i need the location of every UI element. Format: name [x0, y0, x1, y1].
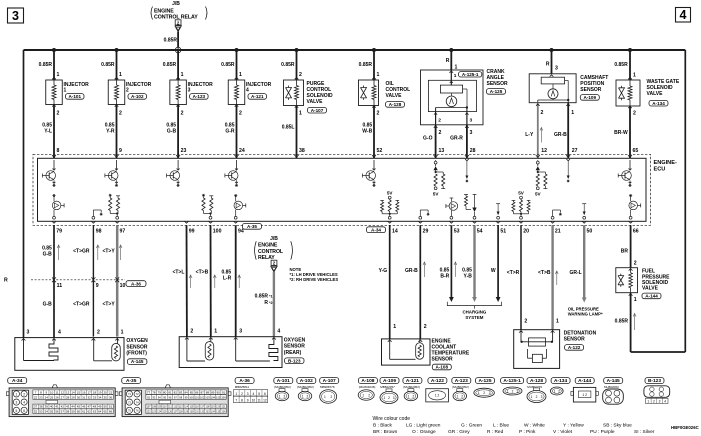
- svg-text:R: R: [264, 300, 268, 306]
- svg-text:1: 1: [57, 72, 60, 78]
- svg-text:121: 121: [222, 406, 227, 409]
- svg-text:G : Green: G : Green: [461, 423, 482, 429]
- svg-text:125: 125: [163, 411, 168, 414]
- svg-text:Y-L: Y-L: [44, 129, 52, 135]
- svg-text:3: 3: [188, 88, 191, 94]
- svg-text:135: 135: [216, 411, 221, 414]
- svg-text:104: 104: [211, 395, 216, 399]
- svg-text:52: 52: [34, 410, 38, 414]
- svg-text:G-B: G-B: [43, 252, 53, 258]
- svg-text:SENSOR: SENSOR: [564, 337, 586, 343]
- svg-text:GR-R: GR-R: [450, 135, 463, 141]
- svg-text:A-125-1: A-125-1: [503, 378, 521, 384]
- svg-text:5V: 5V: [518, 191, 525, 196]
- svg-text:110: 110: [163, 406, 167, 409]
- svg-text:77: 77: [147, 391, 151, 395]
- svg-text:23: 23: [39, 395, 43, 399]
- svg-text:0.85R: 0.85R: [221, 62, 235, 68]
- svg-text:130: 130: [189, 411, 194, 414]
- svg-text:128: 128: [179, 411, 184, 414]
- svg-text:A-108: A-108: [361, 378, 374, 384]
- svg-text:107: 107: [147, 406, 152, 409]
- svg-text:A-35: A-35: [126, 378, 137, 384]
- svg-text:2: 2: [299, 72, 302, 78]
- svg-text:A-107: A-107: [323, 378, 336, 384]
- svg-text:15: 15: [77, 391, 81, 395]
- svg-text:132: 132: [200, 411, 205, 414]
- svg-text:3: 3: [470, 130, 473, 136]
- svg-text:0.85: 0.85: [42, 123, 52, 129]
- svg-text:13: 13: [66, 391, 70, 395]
- svg-text:116: 116: [195, 406, 199, 409]
- svg-text:51: 51: [109, 405, 113, 409]
- svg-text:6: 6: [264, 392, 266, 396]
- svg-text:94: 94: [238, 228, 244, 234]
- svg-text:VALVE: VALVE: [386, 93, 403, 99]
- svg-text:1: 1: [279, 394, 281, 398]
- svg-text:14: 14: [71, 391, 75, 395]
- svg-text:3: 3: [541, 395, 543, 399]
- svg-text:OXYGEN: OXYGEN: [126, 338, 148, 344]
- svg-text:49: 49: [98, 405, 102, 409]
- svg-text:28: 28: [470, 148, 476, 154]
- svg-text:11: 11: [55, 391, 58, 395]
- svg-text:2: 2: [119, 111, 122, 117]
- svg-text:2: 2: [524, 319, 527, 325]
- svg-text:A-145: A-145: [131, 359, 144, 364]
- svg-text:4: 4: [664, 400, 666, 404]
- svg-text:R: R: [4, 277, 8, 283]
- svg-text:1: 1: [239, 72, 242, 78]
- svg-text:8: 8: [241, 399, 243, 403]
- svg-text:A-34: A-34: [12, 378, 23, 384]
- svg-text:28: 28: [66, 395, 70, 399]
- svg-text:A-121: A-121: [251, 94, 264, 99]
- svg-text:2: 2: [241, 392, 243, 396]
- svg-text:HBF0GE026C: HBF0GE026C: [671, 425, 699, 430]
- svg-text:0.85R: 0.85R: [164, 38, 178, 44]
- svg-text:A-109: A-109: [584, 95, 597, 100]
- svg-text:L-R: L-R: [223, 276, 232, 282]
- svg-text:39: 39: [45, 405, 49, 409]
- svg-text:122: 122: [147, 411, 152, 414]
- svg-text:PU : Purple: PU : Purple: [590, 429, 615, 435]
- svg-text:9: 9: [119, 148, 122, 154]
- svg-text:65: 65: [103, 410, 107, 414]
- svg-text:12: 12: [61, 391, 65, 395]
- svg-text:A-101: A-101: [68, 94, 81, 99]
- svg-text:CONTROL: CONTROL: [258, 249, 284, 255]
- svg-text:DETONATION: DETONATION: [564, 330, 597, 336]
- svg-text:2: 2: [283, 394, 285, 398]
- svg-text:4: 4: [680, 8, 687, 22]
- svg-text:A-36: A-36: [131, 281, 141, 286]
- svg-text:85: 85: [190, 391, 194, 395]
- svg-text:1: 1: [457, 394, 459, 398]
- svg-text:2: 2: [368, 393, 370, 397]
- svg-text:100: 100: [189, 395, 194, 399]
- svg-text:52: 52: [377, 148, 383, 154]
- svg-text:5V: 5V: [433, 191, 440, 196]
- svg-text:81: 81: [168, 391, 172, 395]
- svg-text:MB825811: MB825811: [235, 385, 250, 389]
- svg-text:2: 2: [190, 329, 193, 335]
- svg-text:GR-B: GR-B: [405, 268, 418, 274]
- svg-text:VALVE: VALVE: [307, 99, 324, 105]
- svg-text:1: 1: [377, 72, 380, 78]
- svg-text:A-102: A-102: [131, 94, 144, 99]
- svg-text:2: 2: [126, 88, 129, 94]
- svg-text:8: 8: [57, 148, 60, 154]
- svg-text:31: 31: [82, 395, 86, 399]
- svg-text:A-134: A-134: [652, 101, 665, 106]
- svg-text:63: 63: [93, 410, 97, 414]
- svg-text:21: 21: [555, 228, 561, 234]
- svg-text:21: 21: [109, 391, 113, 395]
- svg-text:1: 1: [16, 392, 18, 396]
- svg-text:0.85: 0.85: [221, 270, 231, 276]
- svg-text:2: 2: [439, 130, 442, 136]
- svg-text:1: 1: [64, 88, 67, 94]
- svg-text:12: 12: [263, 399, 267, 403]
- svg-text:5V: 5V: [387, 191, 394, 196]
- svg-text:A-125: A-125: [478, 378, 491, 384]
- svg-text:GR : Grey: GR : Grey: [448, 429, 470, 435]
- svg-text:55: 55: [50, 410, 54, 414]
- svg-text:R: R: [446, 58, 450, 64]
- svg-text:40: 40: [50, 405, 54, 409]
- svg-text:27: 27: [572, 148, 578, 154]
- svg-text:17: 17: [87, 391, 91, 395]
- svg-text:V : Violet: V : Violet: [553, 429, 573, 435]
- svg-text:97: 97: [120, 228, 126, 234]
- svg-text:3: 3: [555, 66, 558, 72]
- svg-text:14: 14: [392, 228, 398, 234]
- svg-text:GR-B: GR-B: [554, 132, 567, 138]
- svg-text:2: 2: [512, 389, 514, 393]
- svg-text:10: 10: [50, 391, 54, 395]
- svg-text:2: 2: [412, 394, 414, 398]
- svg-text:18: 18: [93, 391, 97, 395]
- svg-text:118: 118: [206, 406, 210, 409]
- svg-text:VALVE: VALVE: [647, 91, 664, 97]
- svg-text:3: 3: [393, 396, 395, 400]
- svg-text:86: 86: [195, 391, 199, 395]
- svg-text:2: 2: [377, 111, 380, 117]
- svg-text:25: 25: [50, 395, 54, 399]
- svg-text:22: 22: [34, 395, 38, 399]
- svg-text:1: 1: [119, 72, 122, 78]
- svg-text:66: 66: [109, 410, 113, 414]
- svg-text:106: 106: [221, 395, 226, 399]
- svg-text:A-102: A-102: [300, 378, 313, 384]
- svg-text:0.85: 0.85: [166, 123, 176, 129]
- svg-text:(REAR): (REAR): [284, 350, 302, 356]
- svg-text:20: 20: [103, 391, 107, 395]
- svg-text:R : Red: R : Red: [487, 429, 504, 435]
- svg-text:129: 129: [184, 411, 189, 414]
- svg-text:A-122: A-122: [568, 345, 581, 350]
- svg-text:2: 2: [306, 394, 308, 398]
- svg-text:61: 61: [82, 410, 86, 414]
- svg-text:A-145: A-145: [607, 378, 620, 384]
- svg-text:1: 1: [633, 73, 636, 79]
- svg-text:9: 9: [247, 399, 249, 403]
- svg-text:47: 47: [87, 405, 91, 409]
- svg-text:ENGINE: ENGINE: [154, 8, 174, 14]
- svg-text:11: 11: [257, 399, 261, 403]
- svg-text:112: 112: [173, 406, 177, 409]
- svg-text:2: 2: [653, 400, 655, 404]
- svg-text:3: 3: [12, 9, 19, 23]
- svg-text:0.85: 0.85: [105, 123, 115, 129]
- svg-text:11: 11: [57, 283, 63, 289]
- svg-text:1: 1: [121, 330, 124, 336]
- svg-text:7: 7: [235, 399, 237, 403]
- svg-text:19: 19: [98, 391, 102, 395]
- svg-text:G-R: G-R: [225, 129, 235, 135]
- svg-text:A-122: A-122: [431, 378, 444, 384]
- svg-text:2: 2: [424, 324, 427, 330]
- svg-text:0.85: 0.85: [42, 246, 52, 252]
- svg-text:<T>GR: <T>GR: [73, 302, 90, 308]
- svg-text:B-R: B-R: [440, 274, 449, 280]
- svg-text:A-36: A-36: [239, 378, 250, 384]
- svg-text:L-Y: L-Y: [525, 132, 534, 138]
- svg-text:0.85L: 0.85L: [282, 125, 295, 131]
- svg-text:Y-G: Y-G: [379, 268, 388, 274]
- svg-text:A-128: A-128: [530, 378, 543, 384]
- svg-text:0.85: 0.85: [440, 268, 450, 274]
- svg-text:SENSOR: SENSOR: [284, 344, 306, 350]
- svg-text:W : White: W : White: [524, 423, 545, 429]
- svg-text:1: 1: [324, 395, 326, 399]
- svg-text:4: 4: [253, 392, 255, 396]
- svg-text:65: 65: [633, 148, 639, 154]
- svg-text:26: 26: [55, 395, 59, 399]
- svg-text:Y-R: Y-R: [106, 129, 115, 135]
- svg-text:53: 53: [454, 228, 460, 234]
- svg-text:100: 100: [213, 228, 222, 234]
- svg-text:34: 34: [98, 395, 102, 399]
- svg-text:36: 36: [109, 395, 113, 399]
- svg-text:P : Pink: P : Pink: [519, 429, 536, 435]
- svg-text:91: 91: [222, 391, 226, 395]
- svg-text:WARNING LAMP*: WARNING LAMP*: [568, 311, 603, 316]
- svg-text:1: 1: [454, 73, 457, 79]
- svg-text:3: 3: [489, 391, 491, 395]
- svg-text:INJECTOR: INJECTOR: [246, 82, 272, 88]
- svg-text:R: R: [546, 62, 550, 68]
- svg-text:0.85R: 0.85R: [359, 62, 373, 68]
- svg-text:3: 3: [247, 392, 249, 396]
- svg-text:58: 58: [66, 410, 70, 414]
- svg-text:103: 103: [205, 395, 210, 399]
- svg-text:SENSOR: SENSOR: [580, 87, 602, 93]
- svg-text:115: 115: [189, 406, 193, 409]
- svg-text:16: 16: [82, 391, 86, 395]
- svg-text:1: 1: [383, 396, 385, 400]
- svg-text:VALVE: VALVE: [642, 286, 659, 292]
- svg-text:A-125: A-125: [490, 89, 503, 94]
- svg-text:INJECTOR: INJECTOR: [64, 82, 90, 88]
- svg-text:123: 123: [152, 411, 157, 414]
- svg-text:99: 99: [189, 228, 195, 234]
- svg-text:120: 120: [216, 406, 221, 409]
- svg-text:0.85R: 0.85R: [255, 294, 269, 300]
- svg-text:1: 1: [302, 394, 304, 398]
- svg-text:3: 3: [470, 118, 473, 124]
- svg-text:101: 101: [195, 395, 200, 399]
- svg-text:29: 29: [71, 395, 75, 399]
- svg-text:2: 2: [97, 330, 100, 336]
- svg-text:56: 56: [55, 410, 59, 414]
- svg-text:B : Black: B : Black: [373, 423, 393, 429]
- svg-text:12: 12: [541, 148, 547, 154]
- svg-text:ENGINE: ENGINE: [258, 243, 278, 249]
- svg-text:83: 83: [179, 391, 183, 395]
- svg-text:48: 48: [93, 405, 97, 409]
- svg-text:A-144: A-144: [645, 294, 658, 299]
- svg-text:3: 3: [16, 401, 18, 405]
- svg-text:MU802779: MU802779: [527, 385, 542, 389]
- svg-text:*2: *2: [269, 301, 273, 305]
- svg-text:114: 114: [184, 406, 188, 409]
- svg-text:1: 1: [556, 319, 559, 325]
- svg-text:0.85: 0.85: [362, 123, 372, 129]
- svg-text:13: 13: [439, 148, 445, 154]
- svg-text:ENGINE-: ENGINE-: [654, 160, 677, 166]
- svg-text:1: 1: [507, 389, 509, 393]
- svg-text:1: 1: [393, 324, 396, 330]
- svg-text:54: 54: [477, 228, 483, 234]
- svg-text:46: 46: [82, 405, 86, 409]
- svg-text:0.85R: 0.85R: [614, 62, 628, 68]
- svg-text:W: W: [491, 268, 496, 274]
- svg-text:O : Orange: O : Orange: [412, 429, 436, 435]
- svg-text:A-109: A-109: [383, 378, 396, 384]
- svg-text:Y : Yellow: Y : Yellow: [563, 423, 584, 429]
- svg-text:*2: RH DRIVE VEHICLES: *2: RH DRIVE VEHICLES: [290, 277, 339, 282]
- svg-text:A-108: A-108: [436, 365, 449, 370]
- svg-text:(FRONT): (FRONT): [126, 351, 147, 357]
- svg-text:37: 37: [34, 405, 38, 409]
- svg-text:3: 3: [239, 329, 242, 335]
- svg-text:SYSTEM: SYSTEM: [465, 315, 483, 320]
- svg-text:119: 119: [211, 406, 215, 409]
- svg-text:2: 2: [558, 389, 560, 393]
- svg-text:0.85R: 0.85R: [101, 62, 115, 68]
- svg-text:44: 44: [71, 405, 75, 409]
- svg-text:117: 117: [200, 406, 204, 409]
- svg-text:33: 33: [93, 395, 97, 399]
- svg-text:54: 54: [45, 410, 49, 414]
- svg-text:1 2: 1 2: [435, 394, 440, 398]
- svg-text:27: 27: [61, 395, 65, 399]
- svg-text:59: 59: [71, 410, 75, 414]
- svg-text:89: 89: [211, 391, 215, 395]
- svg-text:2: 2: [461, 394, 463, 398]
- svg-text:4: 4: [58, 330, 61, 336]
- svg-text:78: 78: [152, 391, 156, 395]
- svg-text:82: 82: [174, 391, 178, 395]
- svg-text:105: 105: [216, 395, 221, 399]
- svg-text:BR : Brown: BR : Brown: [373, 429, 398, 435]
- svg-text:SENSOR: SENSOR: [487, 81, 509, 87]
- svg-text:79: 79: [158, 391, 162, 395]
- svg-text:A-123: A-123: [455, 378, 468, 384]
- svg-text:G-B: G-B: [167, 129, 177, 135]
- svg-text:6: 6: [23, 409, 25, 413]
- svg-text:J/B: J/B: [270, 236, 278, 242]
- svg-text:SENSOR: SENSOR: [126, 344, 148, 350]
- svg-text:24: 24: [45, 395, 49, 399]
- svg-text:53: 53: [39, 410, 43, 414]
- svg-text:1: 1: [408, 394, 410, 398]
- svg-text:B-123: B-123: [648, 378, 661, 384]
- svg-text:1: 1: [554, 389, 556, 393]
- svg-text:42: 42: [61, 405, 65, 409]
- svg-text:0.85R: 0.85R: [281, 62, 295, 68]
- svg-text:A-128: A-128: [389, 102, 402, 107]
- svg-text:ECU: ECU: [654, 166, 666, 172]
- svg-text:A-121: A-121: [406, 378, 419, 384]
- svg-text:50: 50: [103, 405, 107, 409]
- svg-text:1: 1: [531, 395, 533, 399]
- svg-text:10: 10: [252, 399, 256, 403]
- svg-text:2: 2: [388, 396, 390, 400]
- svg-text:2: 2: [331, 395, 333, 399]
- svg-text:<T>B: <T>B: [538, 270, 551, 276]
- svg-text:0.85R: 0.85R: [39, 62, 53, 68]
- svg-text:2: 2: [57, 111, 60, 117]
- svg-text:MB988776: MB988776: [320, 385, 335, 389]
- svg-text:127: 127: [173, 411, 178, 414]
- svg-text:MB822357: MB822357: [380, 385, 395, 389]
- svg-text:41: 41: [55, 405, 59, 409]
- svg-text:87: 87: [200, 391, 204, 395]
- svg-text:4: 4: [23, 401, 25, 405]
- svg-text:BR-W: BR-W: [614, 130, 628, 136]
- svg-text:60: 60: [77, 410, 81, 414]
- svg-text:126: 126: [168, 411, 173, 414]
- svg-text:98: 98: [96, 228, 102, 234]
- svg-text:0.85R: 0.85R: [163, 62, 177, 68]
- svg-text:1: 1: [478, 391, 480, 395]
- svg-text:A-125-1: A-125-1: [462, 72, 479, 77]
- svg-text:J/B: J/B: [172, 1, 180, 7]
- svg-text:45: 45: [77, 405, 81, 409]
- svg-text:84: 84: [184, 391, 188, 395]
- svg-text:MU802063: MU802063: [604, 385, 619, 389]
- svg-text:2: 2: [541, 110, 544, 116]
- svg-text:108: 108: [152, 406, 157, 409]
- svg-text:A-101: A-101: [277, 378, 290, 384]
- svg-text:38: 38: [299, 148, 305, 154]
- svg-text:Y-B: Y-B: [464, 274, 473, 280]
- svg-text:62: 62: [87, 410, 91, 414]
- svg-text:1 2: 1 2: [582, 393, 587, 397]
- svg-text:(MU804046): (MU804046): [359, 385, 376, 389]
- svg-text:B-123: B-123: [288, 358, 301, 363]
- svg-text:1: 1: [299, 111, 302, 117]
- svg-text:90: 90: [216, 391, 220, 395]
- svg-text:30: 30: [77, 395, 81, 399]
- svg-text:W-B: W-B: [362, 129, 372, 135]
- svg-text:1: 1: [571, 110, 574, 116]
- svg-text:4: 4: [277, 329, 280, 335]
- svg-text:<T>L: <T>L: [172, 270, 184, 276]
